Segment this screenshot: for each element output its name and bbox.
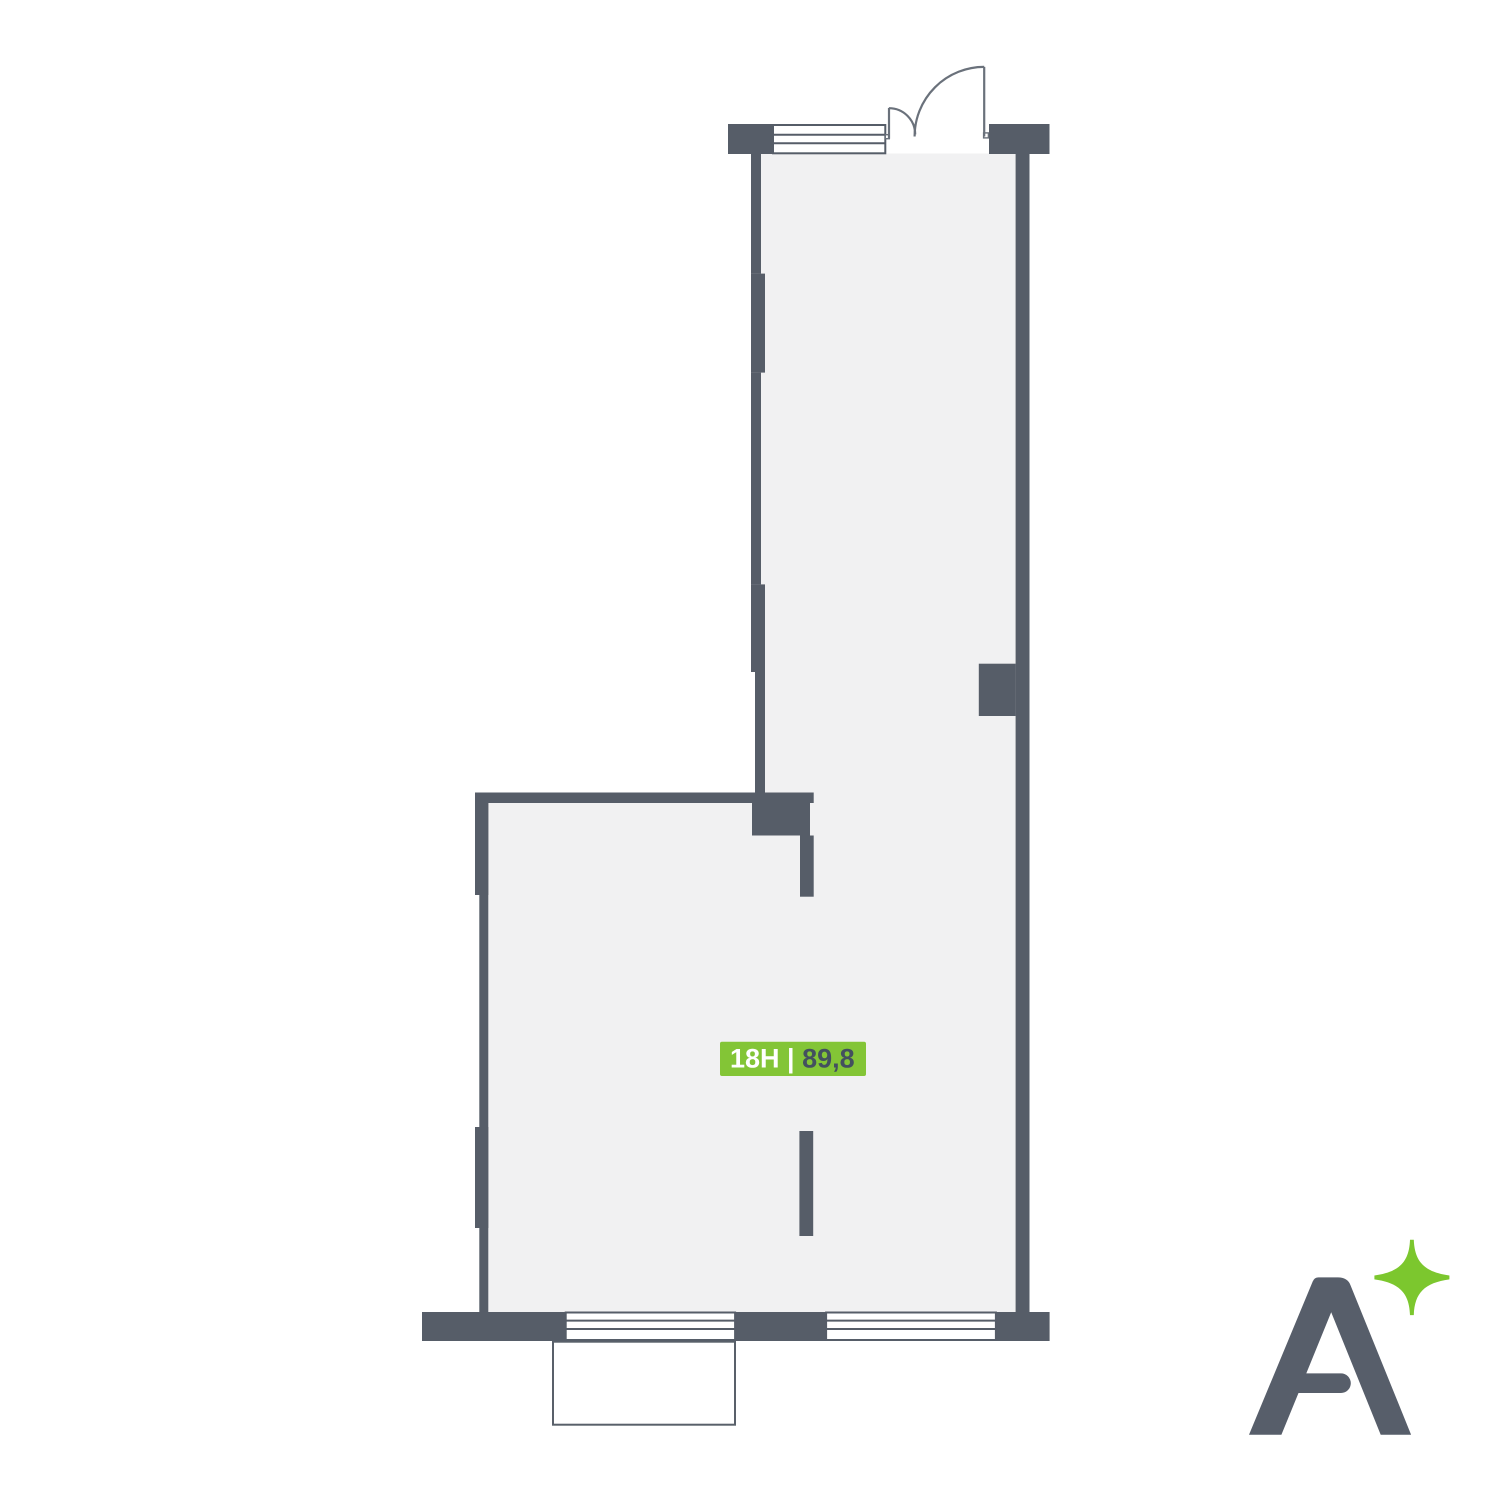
svg-text:18H | 89,8: 18H | 89,8 bbox=[730, 1044, 855, 1074]
